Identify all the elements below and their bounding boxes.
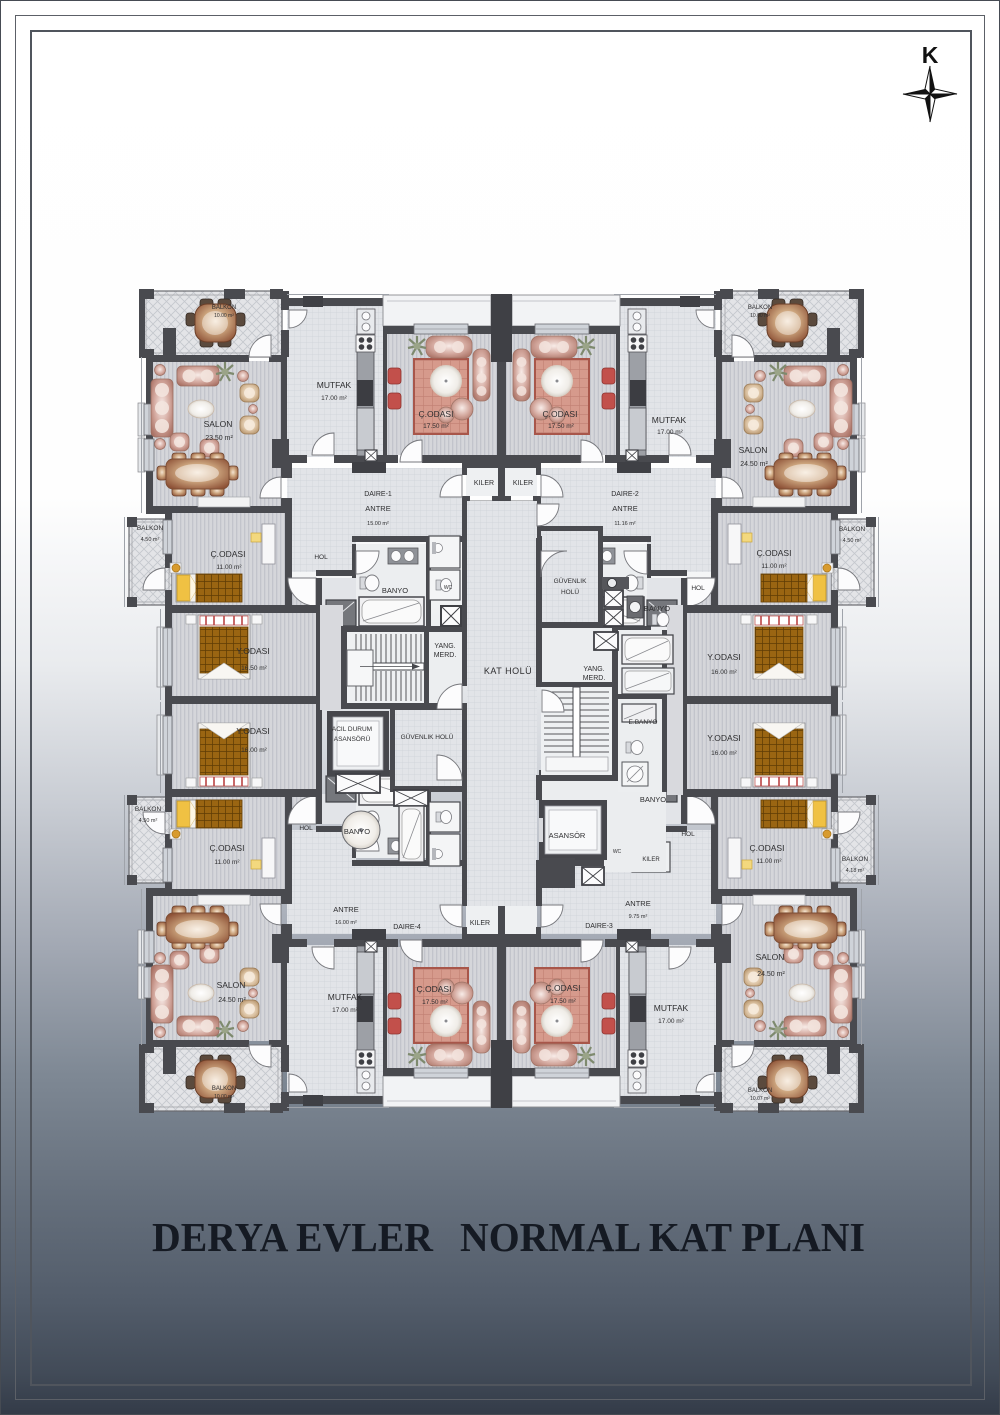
svg-text:GÜVENLIK: GÜVENLIK (554, 577, 588, 585)
svg-text:WC: WC (444, 585, 453, 591)
svg-text:WC: WC (613, 849, 622, 855)
svg-text:17.00 m²: 17.00 m² (332, 1007, 358, 1014)
svg-text:KILER: KILER (474, 480, 494, 487)
svg-text:24.50 m²: 24.50 m² (757, 971, 785, 978)
svg-text:4.18 m²: 4.18 m² (846, 868, 865, 874)
svg-text:11.00 m²: 11.00 m² (761, 563, 787, 570)
svg-text:4.50 m²: 4.50 m² (139, 818, 158, 824)
svg-text:GÜVENLIK HOLÜ: GÜVENLIK HOLÜ (401, 733, 454, 741)
svg-text:ANTRE: ANTRE (365, 504, 390, 513)
svg-text:DAIRE-4: DAIRE-4 (393, 924, 421, 931)
svg-text:HOL: HOL (691, 585, 705, 592)
svg-text:SALON: SALON (756, 952, 785, 962)
svg-text:ANTRE: ANTRE (333, 905, 358, 914)
svg-text:MUTFAK: MUTFAK (654, 1003, 689, 1013)
svg-text:4.50 m²: 4.50 m² (843, 538, 862, 544)
svg-text:DAIRE-1: DAIRE-1 (364, 491, 392, 498)
svg-text:HOL: HOL (314, 554, 328, 561)
svg-text:11.00 m²: 11.00 m² (216, 564, 242, 571)
svg-text:Ç.ODASI: Ç.ODASI (211, 549, 246, 559)
svg-text:BALKON: BALKON (748, 305, 772, 311)
svg-text:BALKON: BALKON (137, 525, 164, 532)
svg-text:16.00 m²: 16.00 m² (711, 669, 737, 676)
svg-text:16.00 m²: 16.00 m² (335, 920, 357, 926)
svg-text:SALON: SALON (739, 445, 768, 455)
svg-text:17.50 m²: 17.50 m² (550, 998, 576, 1005)
svg-text:16.00 m²: 16.00 m² (241, 747, 267, 754)
svg-text:E.BANYO: E.BANYO (629, 719, 658, 726)
svg-text:BANYO: BANYO (640, 795, 666, 804)
svg-text:HOL: HOL (681, 831, 695, 838)
svg-text:10.00 m²: 10.00 m² (214, 313, 234, 319)
svg-text:23.50 m²: 23.50 m² (205, 435, 233, 442)
svg-text:ACIL DURUM: ACIL DURUM (332, 726, 372, 733)
svg-text:BANYO: BANYO (644, 604, 670, 613)
svg-text:YANG.: YANG. (583, 666, 604, 673)
svg-text:Ç.ODASI: Ç.ODASI (757, 548, 792, 558)
svg-text:MUTFAK: MUTFAK (317, 380, 352, 390)
svg-text:BANYO: BANYO (344, 827, 370, 836)
svg-text:ASANSÖR: ASANSÖR (549, 831, 586, 840)
svg-text:MERD.: MERD. (434, 652, 457, 659)
svg-text:BALKON: BALKON (212, 305, 236, 311)
svg-text:Ç.ODASI: Ç.ODASI (543, 409, 578, 419)
svg-text:KAT HOLÜ: KAT HOLÜ (484, 666, 532, 676)
svg-text:11.16 m²: 11.16 m² (614, 521, 635, 527)
svg-text:17.50 m²: 17.50 m² (422, 999, 448, 1006)
svg-text:9.75 m²: 9.75 m² (629, 914, 648, 920)
svg-text:BALKON: BALKON (842, 856, 869, 863)
svg-text:10.00 m²: 10.00 m² (750, 313, 770, 319)
svg-text:17.00 m²: 17.00 m² (658, 1018, 684, 1025)
svg-text:Ç.ODASI: Ç.ODASI (210, 843, 245, 853)
svg-text:BALKON: BALKON (212, 1086, 236, 1092)
svg-text:Y.ODASI: Y.ODASI (236, 726, 269, 736)
svg-text:17.00 m²: 17.00 m² (657, 429, 683, 436)
svg-text:KILER: KILER (470, 920, 490, 927)
svg-text:4.50 m²: 4.50 m² (141, 537, 160, 543)
svg-text:MUTFAK: MUTFAK (328, 992, 363, 1002)
svg-text:KILER: KILER (513, 480, 533, 487)
svg-text:Y.ODASI: Y.ODASI (707, 652, 740, 662)
svg-text:BALKON: BALKON (135, 806, 162, 813)
svg-text:SALON: SALON (204, 419, 233, 429)
svg-text:Y.ODASI: Y.ODASI (236, 646, 269, 656)
svg-text:HOLÜ: HOLÜ (561, 588, 579, 596)
svg-text:17.50 m²: 17.50 m² (548, 423, 574, 430)
svg-text:15.00 m²: 15.00 m² (367, 521, 389, 527)
svg-text:Ç.ODASI: Ç.ODASI (417, 984, 452, 994)
svg-text:YANG.: YANG. (434, 643, 455, 650)
svg-text:Ç.ODASI: Ç.ODASI (750, 843, 785, 853)
svg-text:BALKON: BALKON (748, 1088, 772, 1094)
svg-text:Ç.ODASI: Ç.ODASI (419, 409, 454, 419)
svg-text:DAIRE-3: DAIRE-3 (585, 923, 613, 930)
svg-text:DAIRE-2: DAIRE-2 (611, 491, 639, 498)
svg-text:MERD.: MERD. (583, 675, 606, 682)
svg-text:Ç.ODASI: Ç.ODASI (546, 983, 581, 993)
svg-text:17.00 m²: 17.00 m² (321, 395, 347, 402)
svg-text:16.50 m²: 16.50 m² (241, 665, 267, 672)
svg-text:Y.ODASI: Y.ODASI (707, 733, 740, 743)
svg-text:KILER: KILER (642, 857, 660, 863)
svg-text:BANYO: BANYO (382, 586, 408, 595)
svg-text:11.00 m²: 11.00 m² (756, 858, 782, 865)
svg-text:ASANSÖRÜ: ASANSÖRÜ (334, 735, 371, 743)
svg-text:HOL: HOL (299, 825, 313, 832)
svg-text:BALKON: BALKON (839, 526, 866, 533)
svg-text:24.50 m²: 24.50 m² (740, 461, 768, 468)
svg-text:ANTRE: ANTRE (612, 504, 637, 513)
svg-text:SALON: SALON (217, 980, 246, 990)
svg-text:MUTFAK: MUTFAK (652, 415, 687, 425)
svg-text:24.50 m²: 24.50 m² (218, 997, 246, 1004)
svg-text:16.00 m²: 16.00 m² (711, 750, 737, 757)
svg-text:10.00 m²: 10.00 m² (214, 1094, 234, 1100)
svg-text:10.07 m²: 10.07 m² (750, 1096, 770, 1102)
svg-text:11.00 m²: 11.00 m² (214, 859, 240, 866)
svg-text:ANTRE: ANTRE (625, 899, 650, 908)
svg-text:17.50 m²: 17.50 m² (423, 423, 449, 430)
